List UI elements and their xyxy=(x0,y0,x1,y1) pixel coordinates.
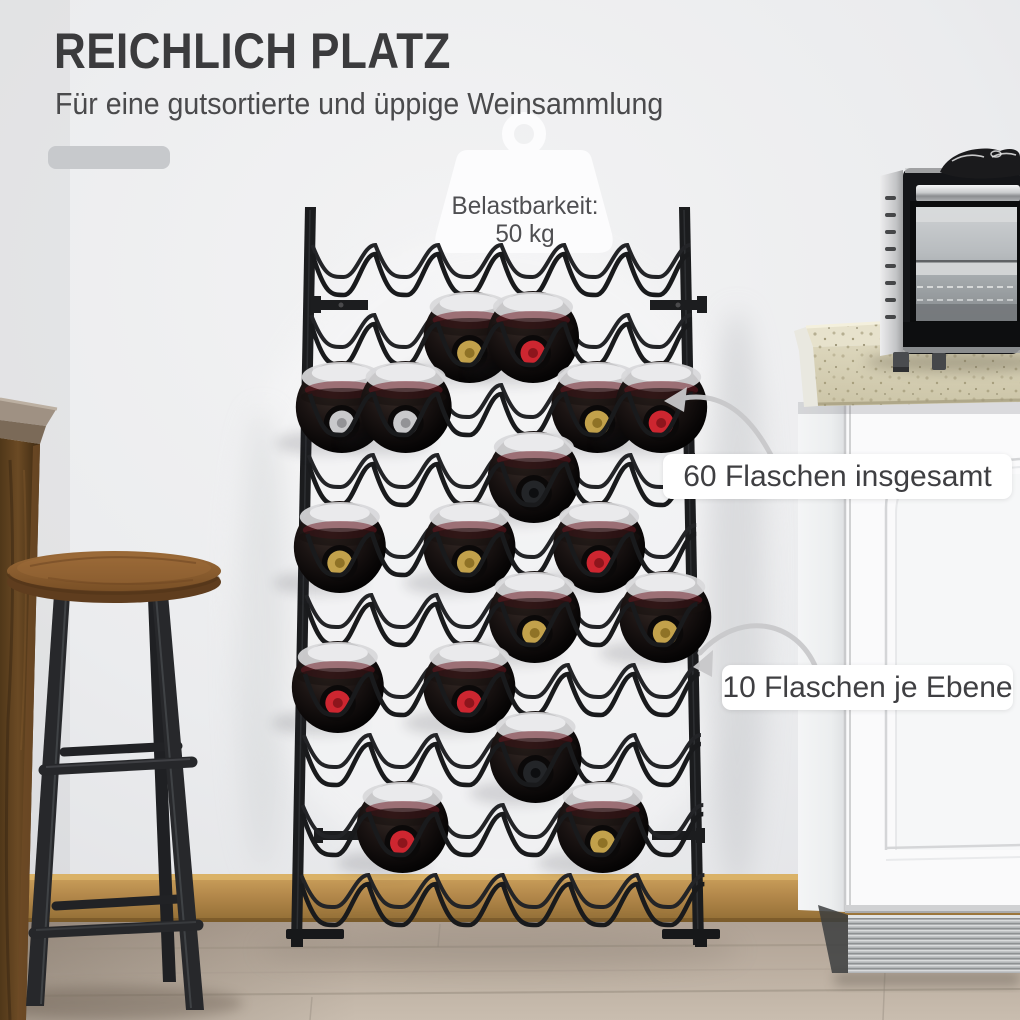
badge-line1: Belastbarkeit: xyxy=(409,192,642,220)
page-title: REICHLICH PLATZ xyxy=(54,22,451,80)
cabinet-kickplate xyxy=(848,915,1020,973)
callout-text: 60 Flaschen insgesamt xyxy=(683,460,992,494)
product-marketing-image: REICHLICH PLATZ Für eine gutsortierte un… xyxy=(0,0,1020,1020)
load-capacity-badge: Belastbarkeit: 50 kg xyxy=(409,192,642,248)
callout-bottles-per-level: 10 Flaschen je Ebene xyxy=(722,665,1013,710)
page-subtitle: Für eine gutsortierte und üppige Weinsam… xyxy=(55,86,663,122)
mini-oven xyxy=(865,149,1020,372)
oven-handle xyxy=(916,185,1020,202)
badge-line2: 50 kg xyxy=(409,220,642,248)
accent-bar xyxy=(48,146,170,169)
callout-text: 10 Flaschen je Ebene xyxy=(722,671,1012,705)
callout-total-bottles: 60 Flaschen insgesamt xyxy=(663,454,1012,499)
